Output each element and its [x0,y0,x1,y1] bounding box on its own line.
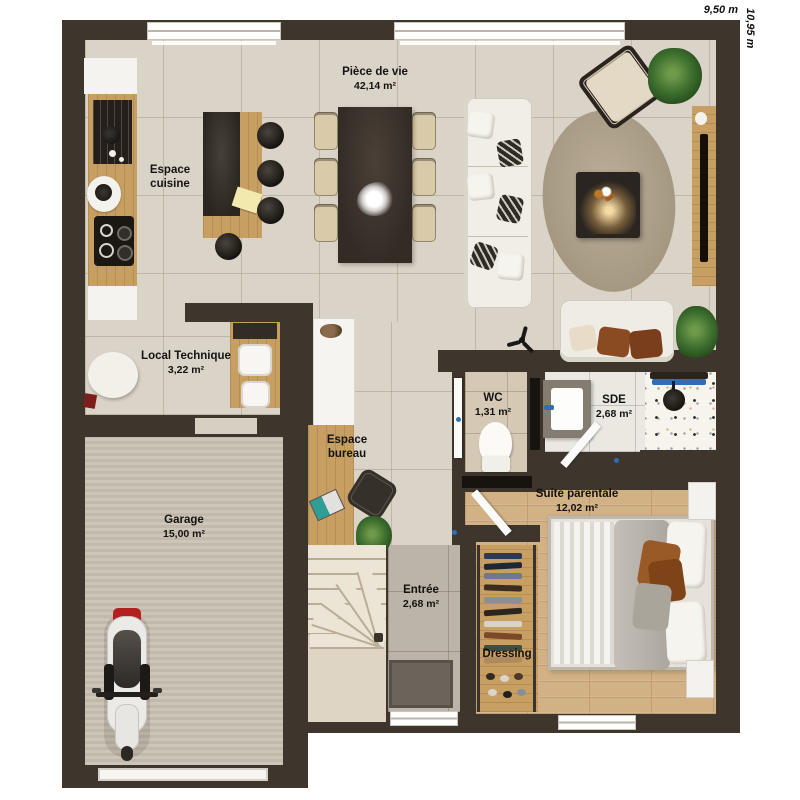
ceiling-fan-icon [506,324,538,356]
shower-head [663,389,685,411]
room-name: Suite parentale [536,488,618,502]
dressing-top-wall [452,525,540,542]
burner-3 [117,226,132,241]
motorcycle [90,600,162,762]
sde-door-handle [614,458,619,463]
folded-clothes [484,597,522,603]
moto-front-wheel [121,746,133,761]
dining-chair-5 [412,158,436,196]
room-label-dressing: Dressing [482,648,531,662]
dryer [241,381,270,408]
moto-seat [113,630,141,688]
kettle [102,126,120,144]
room-name: Espace cuisine [137,164,203,192]
window-sill-right [400,41,620,45]
utility-red-box [83,393,97,409]
room-label-sde: SDE 2,68 m² [596,394,632,420]
folded-clothes [484,562,522,570]
loveseat-pillow-rust-2 [629,328,664,359]
wc-door-handle [456,417,461,422]
bedroom-window [558,715,636,730]
moto-mirror-right [153,688,162,693]
local-technique-wall [280,322,313,417]
dining-chair-1 [314,112,338,150]
room-label-piece-de-vie: Pièce de vie 42,14 m² [342,66,408,92]
room-label-local-technique: Local Technique 3,22 m² [141,350,231,376]
dressing-rail-right [533,545,536,712]
fire-table-flowers [592,186,614,202]
hood-light-2 [119,157,124,162]
sofa-pillow-3 [467,173,496,202]
sofa-seam-1 [468,166,528,167]
dining-chair-2 [314,158,338,196]
wc-sde-door-gap [530,378,540,450]
room-name: WC [475,392,511,406]
burner-1 [100,224,113,237]
shower-bar [650,372,708,379]
room-area: 2,68 m² [596,408,632,421]
garage-door [98,768,268,781]
window-sill-left [152,41,276,45]
room-label-espace-bureau: Espace bureau [317,434,377,462]
stair-tread [308,560,386,575]
room-label-garage: Garage 15,00 m² [163,514,205,540]
bed-pillow-gray [632,582,673,632]
room-area: 15,00 m² [163,528,205,541]
shower-shelf [652,379,706,385]
room-area: 42,14 m² [342,80,408,93]
room-name: Espace bureau [317,434,377,462]
sofa-pillow-1 [466,110,495,139]
console-vase [695,112,707,125]
folded-clothes [484,553,522,559]
shoe [488,689,497,696]
folded-clothes [484,573,522,579]
shoe [514,673,523,680]
folded-clothes [484,584,522,591]
room-name: Local Technique [141,350,231,364]
staircase [308,545,386,722]
hood-light-1 [109,150,116,157]
stair-newel-post [374,633,383,642]
moto-handlebar [96,692,158,697]
room-label-espace-cuisine: Espace cuisine [137,164,203,192]
room-area: 2,68 m² [403,598,439,611]
dressing-rack [476,545,538,712]
wc-bottom-niche [462,476,532,488]
utility-table [88,352,138,398]
dining-chair-3 [314,204,338,242]
shower-bottom-wall [640,450,716,466]
room-label-wc: WC 1,31 m² [475,392,511,418]
floor-plan: Pièce de vie 42,14 m² Espace cuisine Loc… [0,0,800,800]
entry-dressing-wall [460,540,476,722]
fan-hub [519,337,525,343]
dimension-height-label: 10,95 m [744,8,756,48]
shoe [517,689,526,696]
bar-stool-2 [257,160,284,187]
room-area: 12,02 m² [536,502,618,515]
moto-front-fender [115,704,139,750]
burner-2 [99,243,114,258]
coffee-machine-top [95,184,112,201]
room-name: SDE [596,394,632,408]
room-name: Garage [163,514,205,528]
room-name: Pièce de vie [342,66,408,80]
room-label-suite-parentale: Suite parentale 12,02 m² [536,488,618,514]
tv-screen [700,134,708,262]
bedroom-door-handle [452,530,457,535]
moto-mirror-left [92,688,101,693]
dining-chair-6 [412,204,436,242]
folded-clothes [484,621,522,627]
window-top-right [394,22,625,40]
room-name: Dressing [482,648,531,662]
bar-stool-3 [257,197,284,224]
shoe [486,673,495,680]
nightstand-1 [688,482,716,520]
room-name: Entrée [403,584,439,598]
room-area: 3,22 m² [141,364,231,377]
sofa-seam-2 [468,236,528,237]
sofa-pillow-2 [496,138,524,168]
front-door [390,711,458,726]
dressing-rail-left [477,545,480,712]
kitchen-cabinet [88,286,137,320]
washer [238,344,272,376]
burner-4 [117,245,133,261]
shoe [503,691,512,698]
appliance-counter-top [233,323,277,339]
dimension-width-label: 9,50 m [660,4,738,16]
toilet-tank [482,456,510,472]
dining-chair-4 [412,112,436,150]
bed-pillow-white-2 [664,601,707,665]
stair-tread [308,545,386,560]
bar-stool-4 [215,233,242,260]
loveseat-pillow-rust-1 [596,326,632,358]
folded-clothes [484,608,522,617]
folded-clothes [484,632,522,640]
bar-stool-1 [257,122,284,149]
nightstand-2 [686,660,714,698]
sofa-pillow-6 [497,253,525,281]
window-top-left [147,22,281,40]
local-technique-garage-door [195,418,257,434]
faucet [544,405,554,410]
fridge [84,58,137,94]
loveseat-pillow-cream [568,324,598,352]
room-area: 1,31 m² [475,406,511,419]
kitchen-partition-wall [185,303,313,322]
washbasin [551,388,583,430]
door-mat [389,660,453,708]
room-label-entree: Entrée 2,68 m² [403,584,439,610]
fan-blade-2 [522,341,535,354]
shoe [500,675,509,682]
